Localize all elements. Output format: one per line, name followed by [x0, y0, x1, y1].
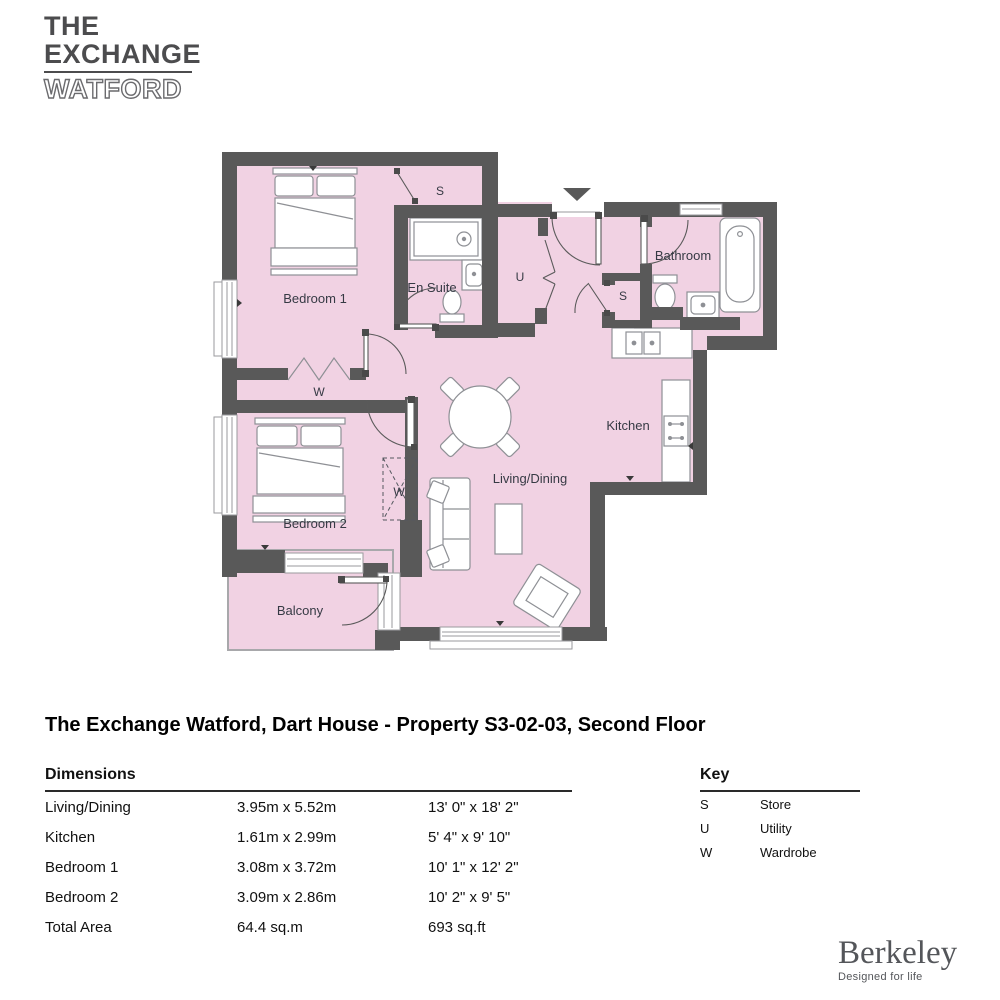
metric-size: 64.4 sq.m	[237, 919, 428, 936]
room-label-living: Living/Dining	[493, 471, 567, 486]
hob-icon	[662, 380, 690, 482]
key-abbr: W	[700, 845, 760, 860]
room-name: Bedroom 1	[45, 859, 237, 876]
berkeley-logo: Berkeley Designed for life	[838, 936, 957, 983]
floorplan-drawing: Bedroom 1 En Suite S U Bathroom S Kitche…	[200, 100, 800, 700]
brand-name: Berkeley	[838, 936, 957, 970]
table-row: Bedroom 1 3.08m x 3.72m 10' 1" x 12' 2"	[45, 852, 572, 882]
imperial-size: 10' 2" x 9' 5"	[428, 889, 572, 906]
page-title: The Exchange Watford, Dart House - Prope…	[45, 714, 706, 737]
bathroom-sink-icon	[687, 292, 719, 318]
room-label-bedroom2: Bedroom 2	[283, 516, 347, 531]
key-row: U Utility	[700, 816, 860, 840]
sofa-icon	[426, 478, 470, 570]
key-row: W Wardrobe	[700, 840, 860, 864]
brand-tagline: Designed for life	[838, 971, 957, 983]
entrance-door-leaf	[596, 217, 601, 264]
room-label-wardrobe2: W	[393, 485, 405, 499]
metric-size: 3.08m x 3.72m	[237, 859, 428, 876]
room-label-store-mid: S	[619, 289, 627, 303]
room-name: Living/Dining	[45, 799, 237, 816]
room-label-balcony: Balcony	[277, 603, 324, 618]
metric-size: 3.09m x 2.86m	[237, 889, 428, 906]
room-name: Bedroom 2	[45, 889, 237, 906]
room-label-wardrobe1: W	[313, 385, 325, 399]
key-label: Store	[760, 797, 791, 812]
logo-divider	[44, 71, 192, 73]
table-row: Total Area 64.4 sq.m 693 sq.ft	[45, 912, 572, 942]
room-label-ensuite: En Suite	[407, 280, 456, 295]
key-row: S Store	[700, 792, 860, 816]
room-label-kitchen: Kitchen	[606, 418, 649, 433]
dimensions-table: Dimensions Living/Dining 3.95m x 5.52m 1…	[45, 766, 572, 942]
bathtub-icon	[720, 218, 760, 312]
logo-line-exchange: EXCHANGE	[44, 40, 201, 68]
bathroom-toilet-icon	[653, 275, 677, 310]
logo-line-watford: WATFORD	[44, 74, 201, 104]
imperial-size: 10' 1" x 12' 2"	[428, 859, 572, 876]
imperial-size: 693 sq.ft	[428, 919, 572, 936]
floorplan-page: THE EXCHANGE WATFORD	[0, 0, 1000, 1000]
key-abbr: U	[700, 821, 760, 836]
key-label: Utility	[760, 821, 792, 836]
key-header: Key	[700, 766, 860, 792]
room-name: Kitchen	[45, 829, 237, 846]
shower-icon	[410, 218, 482, 260]
imperial-size: 13' 0" x 18' 2"	[428, 799, 572, 816]
room-label-bathroom: Bathroom	[655, 248, 711, 263]
table-row: Bedroom 2 3.09m x 2.86m 10' 2" x 9' 5"	[45, 882, 572, 912]
coffee-table-icon	[495, 504, 522, 554]
metric-size: 3.95m x 5.52m	[237, 799, 428, 816]
dining-table-icon	[439, 376, 520, 457]
room-label-utility: U	[516, 270, 525, 284]
dimensions-header: Dimensions	[45, 766, 572, 792]
logo-line-the: THE	[44, 12, 201, 40]
room-label-store-top: S	[436, 184, 444, 198]
kitchen-sink-icon	[612, 328, 692, 358]
key-label: Wardrobe	[760, 845, 817, 860]
imperial-size: 5' 4" x 9' 10"	[428, 829, 572, 846]
development-logo: THE EXCHANGE WATFORD	[44, 12, 201, 104]
room-name: Total Area	[45, 919, 237, 936]
room-label-bedroom1: Bedroom 1	[283, 291, 347, 306]
key-legend: Key S Store U Utility W Wardrobe	[700, 766, 860, 864]
entrance-arrow-icon	[563, 188, 591, 201]
table-row: Kitchen 1.61m x 2.99m 5' 4" x 9' 10"	[45, 822, 572, 852]
table-row: Living/Dining 3.95m x 5.52m 13' 0" x 18'…	[45, 792, 572, 822]
metric-size: 1.61m x 2.99m	[237, 829, 428, 846]
key-abbr: S	[700, 797, 760, 812]
